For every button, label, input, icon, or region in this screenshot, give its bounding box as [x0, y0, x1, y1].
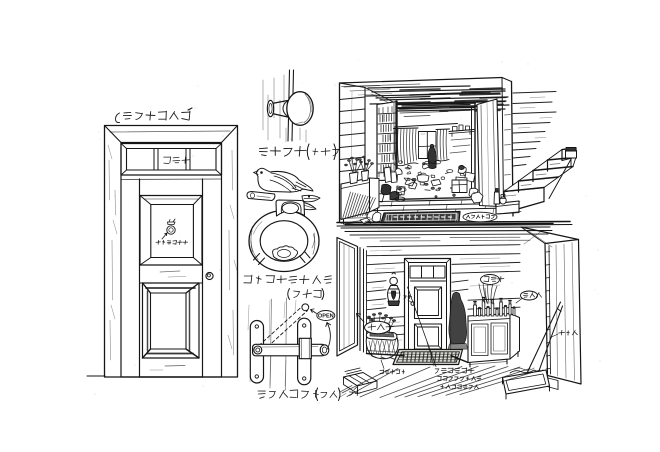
- svg-text:OPEN: OPEN: [318, 314, 334, 320]
